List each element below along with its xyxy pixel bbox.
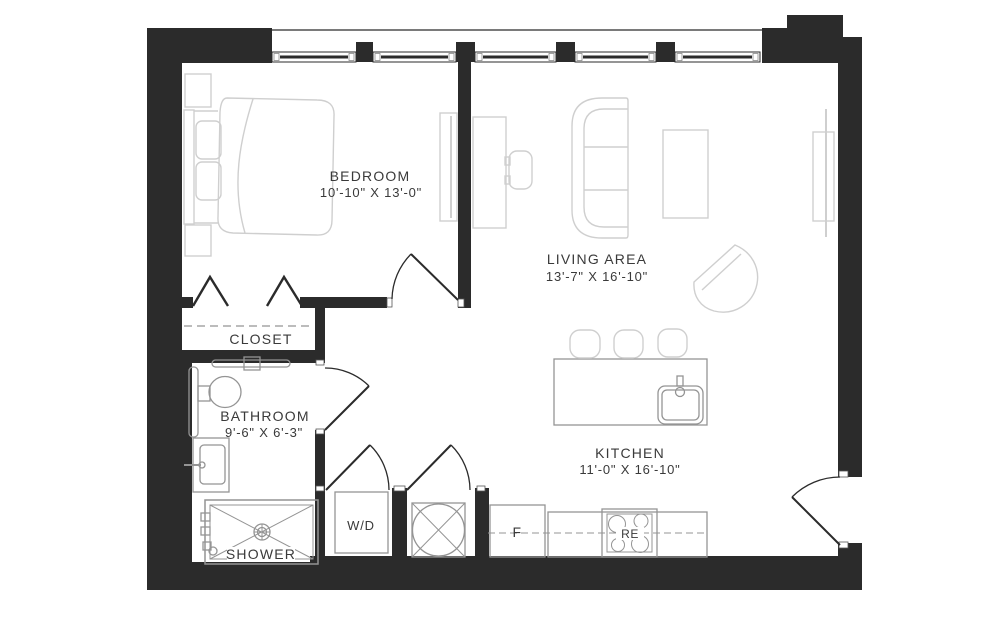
- coffee-table: [663, 130, 708, 218]
- jamb: [387, 298, 392, 307]
- door-swing-arc: [451, 445, 470, 490]
- refrigerator-label: F: [512, 524, 521, 540]
- jamb: [316, 486, 324, 491]
- living-label: LIVING AREA: [547, 251, 647, 267]
- mullion: [656, 42, 675, 62]
- bedroom-furniture: [184, 74, 457, 256]
- wall-laundry-mech-stub: [392, 488, 407, 557]
- interior-walls: [182, 62, 489, 562]
- kitchen-dims: 11'-0" X 16'-10": [579, 462, 680, 477]
- sink-faucet: [676, 388, 685, 397]
- bathroom-fixtures: [184, 357, 318, 564]
- shower-label: SHOWER: [226, 546, 296, 562]
- wall-bathroom-furring: [182, 350, 192, 562]
- sofa-outline: [572, 98, 628, 238]
- wall-bedroom-south-stub: [182, 297, 193, 308]
- desk-chair: [509, 151, 532, 189]
- bathroom-door: [325, 368, 369, 430]
- sofa-inner: [584, 109, 628, 227]
- wall-bathroom-hall: [315, 430, 325, 557]
- bifold-door: [267, 277, 302, 306]
- bathroom-dims: 9'-6" X 6'-3": [225, 425, 303, 440]
- floorplan-drawing: BEDROOM 10'-10" X 13'-0" LIVING AREA 13'…: [0, 0, 998, 626]
- window-wall: [272, 30, 762, 62]
- door-leaf: [326, 445, 370, 490]
- bifold-door: [193, 277, 228, 306]
- laundry-closet-door: [326, 445, 389, 490]
- mechanical-closet-door: [407, 445, 470, 490]
- door-swing-arc: [792, 477, 840, 497]
- toilet-bowl: [209, 377, 241, 408]
- range-label: RE: [621, 527, 639, 541]
- accent-chair-seat: [702, 254, 741, 290]
- jamb: [316, 360, 324, 365]
- toilet-tank: [198, 386, 210, 401]
- wall-right-upper: [838, 37, 862, 477]
- exterior-walls: [147, 15, 862, 590]
- bathroom-label: BATHROOM: [220, 408, 309, 424]
- bed-mattress-edge: [194, 111, 218, 223]
- door-swing-arc: [370, 445, 389, 490]
- bar-stool: [570, 330, 600, 358]
- bed-duvet: [218, 98, 334, 235]
- wall-bottom-left: [147, 562, 310, 590]
- sofa-cushion-lines: [584, 147, 628, 190]
- door-swing-arc: [392, 254, 411, 299]
- jamb: [839, 542, 848, 548]
- wall-top-left: [147, 28, 272, 63]
- door-leaf: [325, 386, 369, 430]
- kitchen-stools: [570, 329, 687, 358]
- wall-bedroom-south: [300, 297, 387, 308]
- island-sink-inner: [662, 390, 699, 420]
- wall-mech-right-stub: [475, 488, 489, 557]
- nightstand: [185, 74, 211, 107]
- doors: [193, 254, 840, 545]
- bed-pillow: [196, 121, 221, 159]
- living-dims: 13'-7" X 16'-10": [546, 269, 648, 284]
- door-swing-arc: [325, 368, 369, 386]
- mullion: [556, 42, 575, 62]
- jamb: [477, 486, 485, 491]
- bar-stool: [658, 329, 687, 357]
- tv-console: [813, 132, 834, 221]
- door-leaf: [411, 254, 458, 300]
- bedroom-label: BEDROOM: [330, 168, 411, 184]
- closet-label: CLOSET: [229, 331, 292, 347]
- jamb: [316, 429, 324, 434]
- wall-closet-side: [315, 308, 325, 351]
- mechanical-closet-fixtures: [412, 503, 465, 557]
- living-room-furniture: [473, 98, 834, 312]
- range-burner: [634, 514, 648, 528]
- jamb: [458, 299, 464, 307]
- door-leaf: [407, 445, 451, 490]
- accent-chair: [694, 245, 758, 312]
- wall-top-right: [762, 28, 843, 63]
- desk: [473, 117, 506, 228]
- nightstand: [185, 225, 211, 256]
- jamb: [839, 471, 848, 477]
- vanity-sink: [200, 445, 225, 484]
- closet-bifold-doors: [193, 277, 302, 306]
- island-sink: [658, 386, 703, 424]
- bed-headboard: [184, 110, 194, 224]
- wall-bedroom-living-partition: [458, 62, 471, 308]
- laundry-label: W/D: [347, 518, 375, 533]
- bed-pillow: [196, 162, 221, 200]
- floorplan-page: BEDROOM 10'-10" X 13'-0" LIVING AREA 13'…: [0, 0, 998, 626]
- bedroom-dresser: [440, 113, 457, 221]
- bar-stool: [614, 330, 643, 358]
- bed-duvet-fold: [238, 99, 253, 233]
- wall-top-right-bump: [787, 15, 843, 28]
- mullion: [456, 42, 475, 62]
- door-leaf: [792, 497, 840, 545]
- mullion: [356, 42, 373, 62]
- jamb: [394, 486, 405, 491]
- wall-left: [147, 28, 182, 590]
- bedroom-door: [392, 254, 458, 300]
- kitchen-label: KITCHEN: [595, 445, 665, 461]
- sink-faucet-stem: [677, 376, 683, 386]
- bedroom-dims: 10'-10" X 13'-0": [320, 185, 422, 200]
- entry-door: [792, 477, 840, 545]
- wall-bottom: [310, 556, 862, 590]
